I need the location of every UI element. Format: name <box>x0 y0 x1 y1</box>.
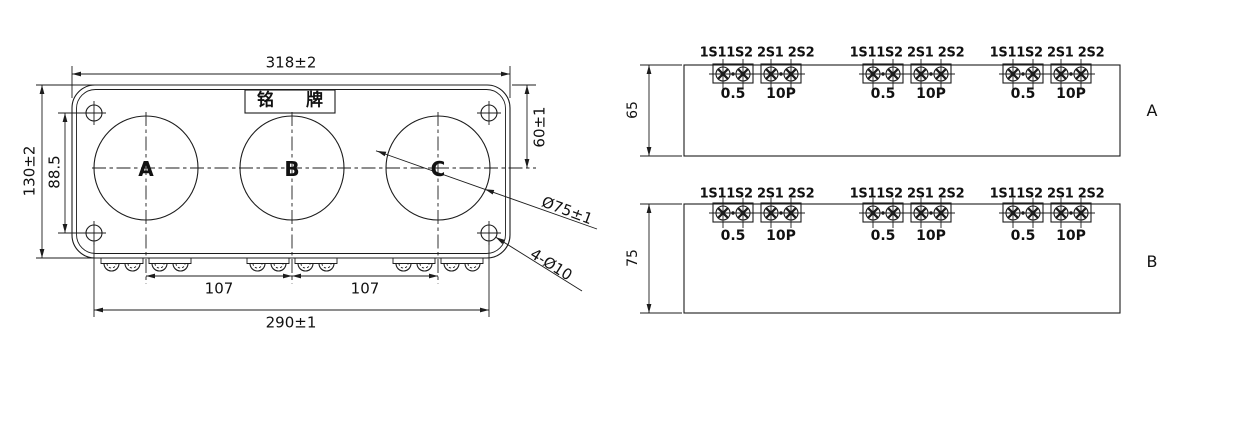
terminal-lug-plate <box>295 258 337 271</box>
terminal-lug-plate <box>149 258 191 271</box>
terminal-block-group <box>999 198 1095 228</box>
dimension-line <box>94 308 489 313</box>
terminal-block-group <box>709 59 805 89</box>
dimension-line <box>63 113 68 233</box>
dimension-line <box>647 65 652 156</box>
technical-drawing-page: 318±2 130±2 88.5 60±1 Ø75±1 4-Ø10 107 10… <box>0 0 1248 432</box>
nameplate-box <box>245 90 335 113</box>
enclosure-inner-outline <box>77 90 506 254</box>
dimension-line <box>40 85 45 258</box>
drawing-linework <box>0 0 1248 432</box>
terminal-box-a-outline <box>684 65 1120 156</box>
enclosure-outer-outline <box>72 85 510 258</box>
terminal-block-group <box>859 59 955 89</box>
leader-lines <box>376 151 597 291</box>
front-view <box>36 66 597 317</box>
extension-lines <box>36 66 536 317</box>
terminal-lug-plate <box>101 258 143 271</box>
terminal-view-b <box>640 204 1120 313</box>
terminal-lug-plate <box>393 258 435 271</box>
dimension-line <box>292 274 438 279</box>
dimension-line <box>647 204 652 313</box>
terminal-block-group <box>709 198 805 228</box>
dimension-line <box>72 72 510 77</box>
terminal-view-a <box>640 65 1120 156</box>
terminal-box-b-outline <box>684 204 1120 313</box>
generated-linework <box>40 59 1095 313</box>
dimension-line <box>146 274 292 279</box>
terminal-lug-plate <box>247 258 289 271</box>
terminal-block-group <box>859 198 955 228</box>
terminal-lug-plate <box>441 258 483 271</box>
terminal-block-group <box>999 59 1095 89</box>
dimension-line <box>525 85 530 168</box>
